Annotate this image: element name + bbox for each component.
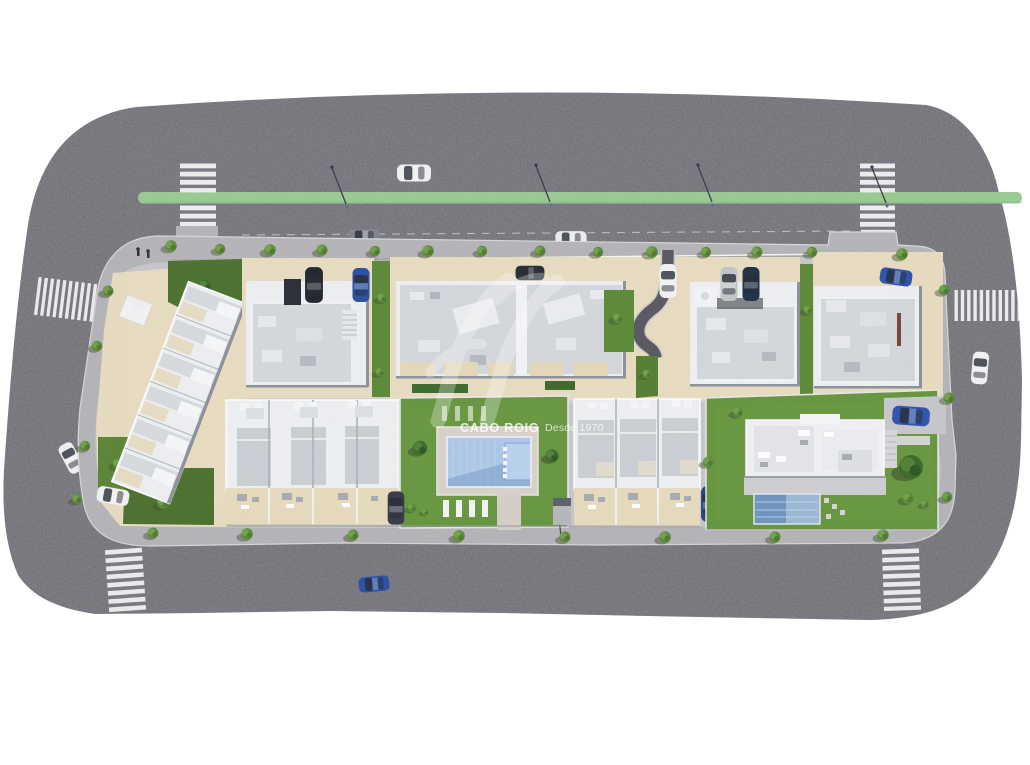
svg-text:Desde 1970: Desde 1970 [545,422,604,434]
svg-text:CABO ROIG: CABO ROIG [460,421,539,435]
